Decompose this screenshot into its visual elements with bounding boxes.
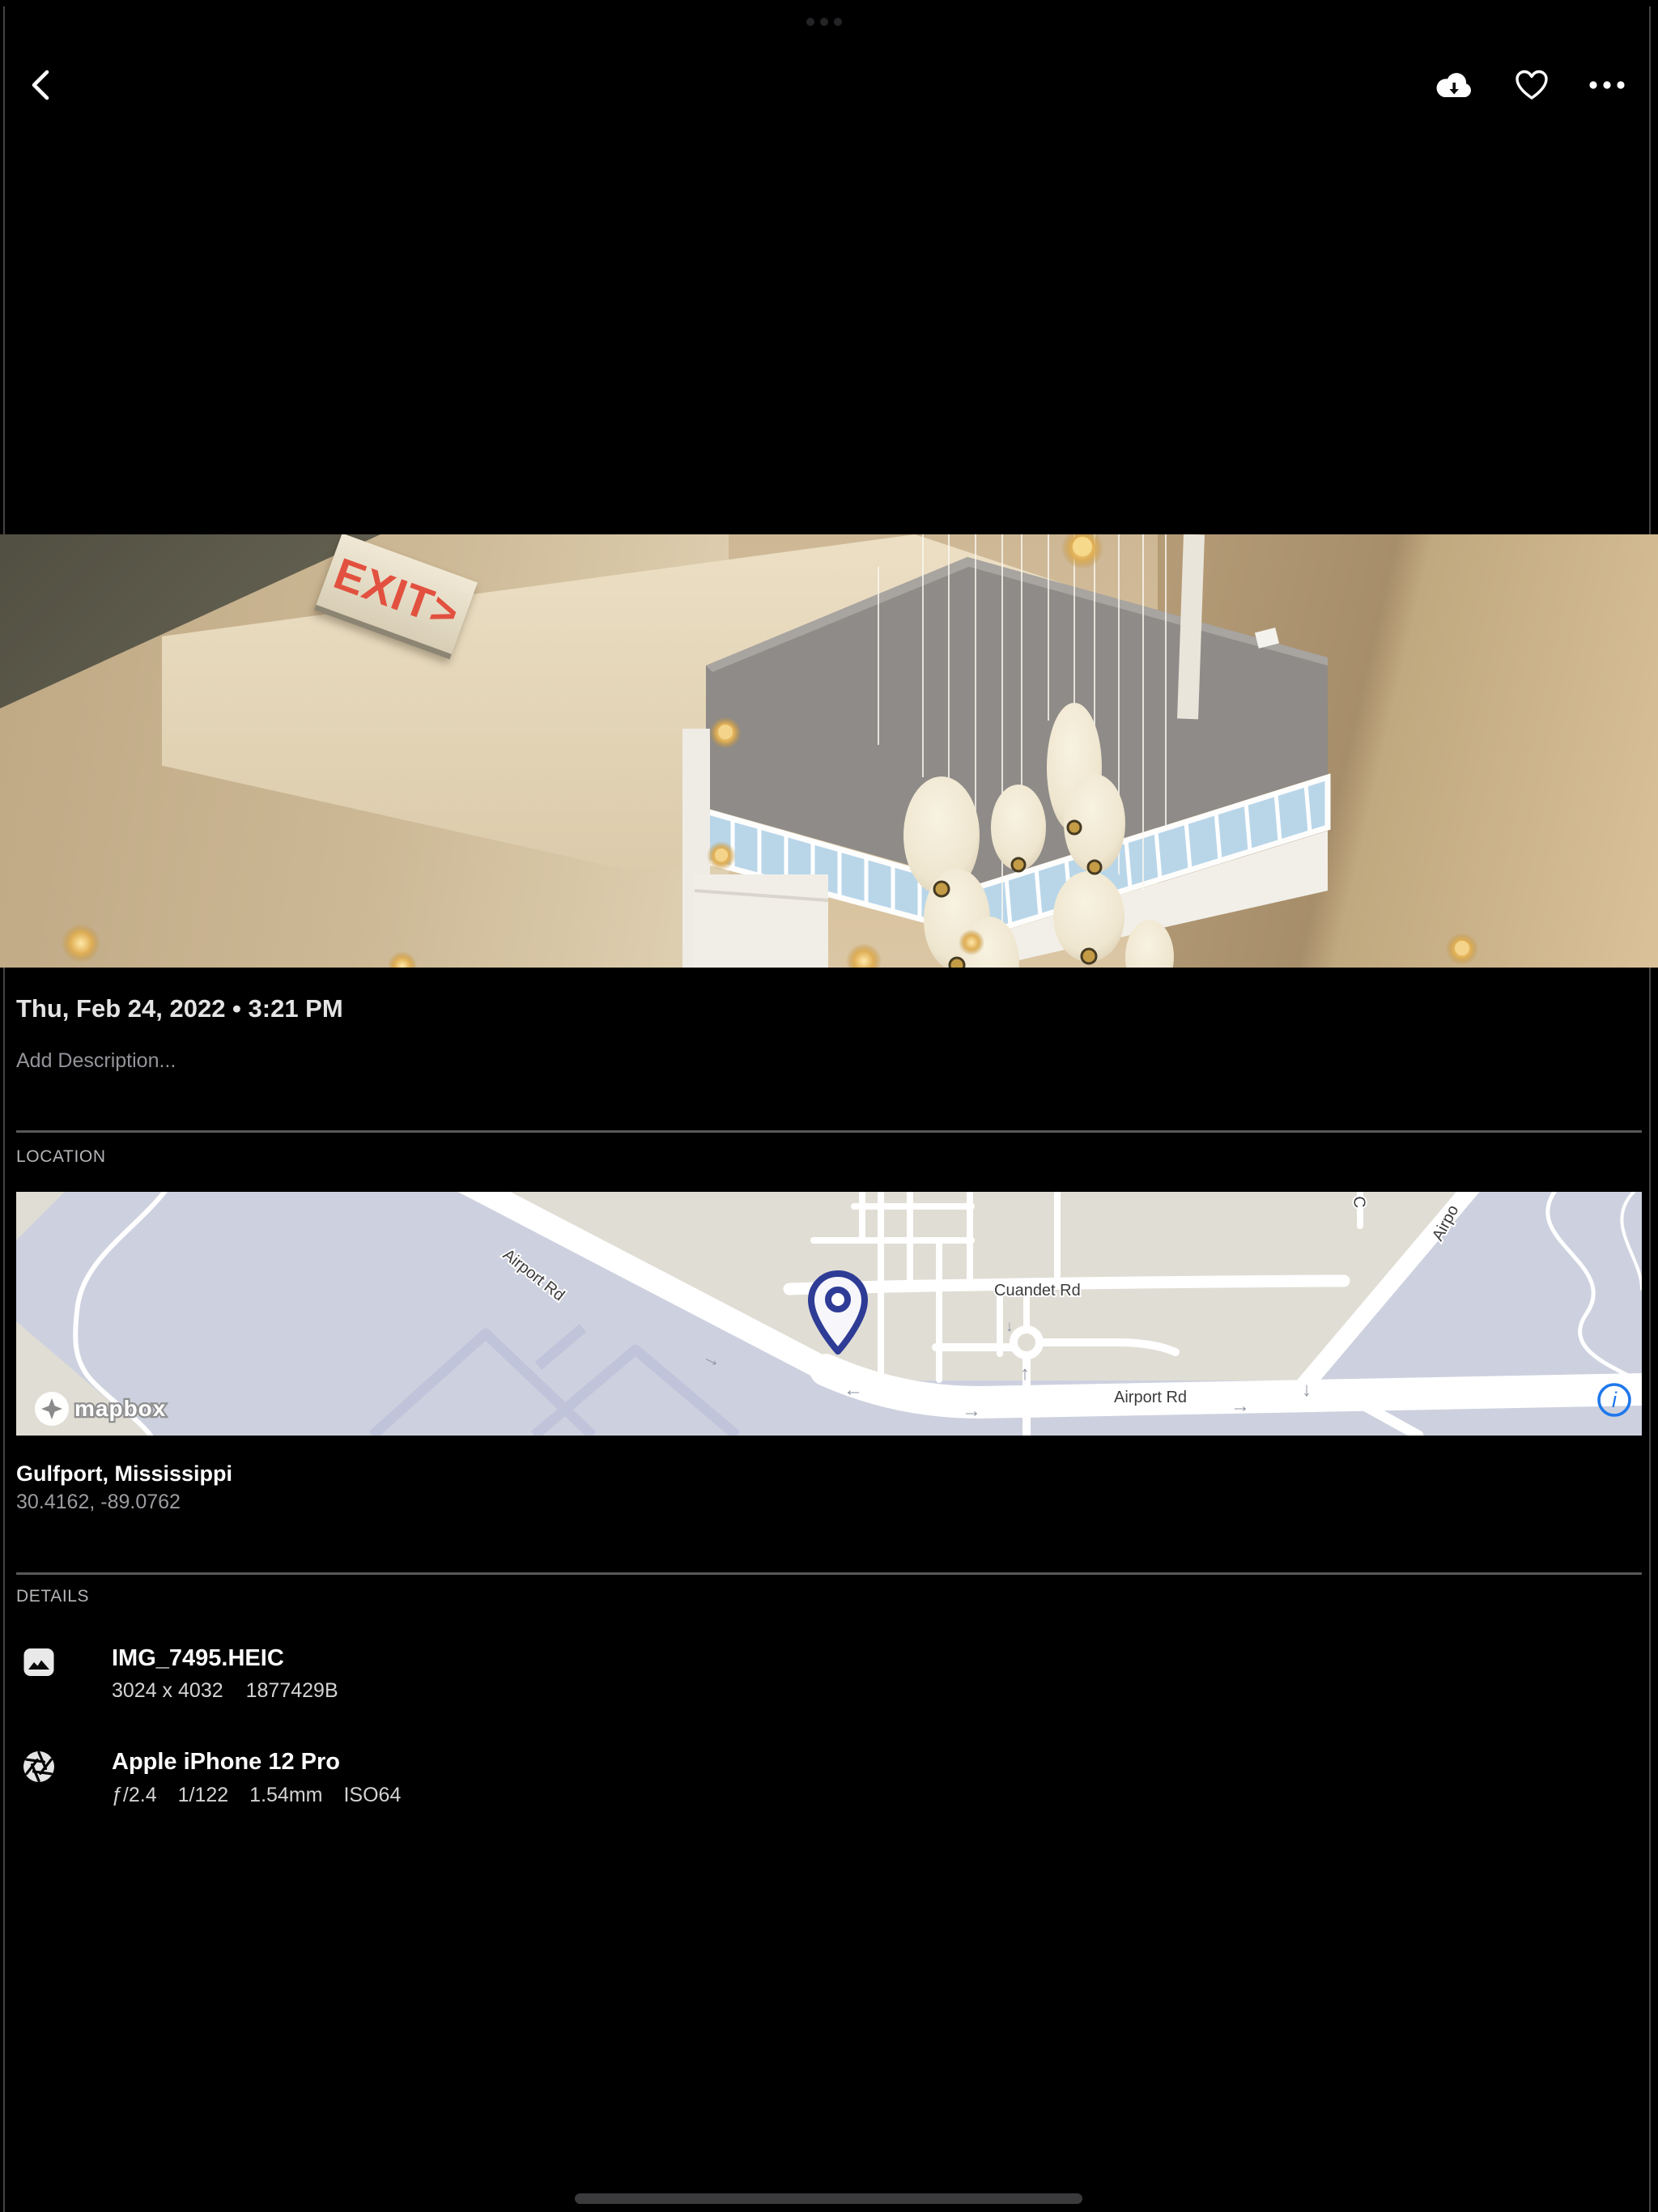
divider [16, 1130, 1642, 1133]
file-meta: 3024 x 4032 1877429B [112, 1679, 338, 1703]
photo-preview[interactable]: EXIT> [0, 534, 1658, 968]
map-canvas: → ← → → ↓ ↑ ↓ Airport Rd Cuandet Rd Airp… [16, 1192, 1642, 1436]
mapbox-logo: mapbox [35, 1392, 166, 1426]
camera-exif-row: ƒ/2.4 1/122 1.54mm ISO64 [112, 1784, 401, 1807]
more-options-button[interactable] [1588, 79, 1626, 94]
camera-aperture: ƒ/2.4 [112, 1784, 157, 1807]
download-button[interactable] [1433, 68, 1475, 108]
aperture-icon [23, 1750, 55, 1787]
road-arrow-icon: ↓ [1302, 1379, 1312, 1401]
home-indicator[interactable] [575, 2193, 1082, 2204]
location-coordinates: 30.4162, -89.0762 [16, 1491, 181, 1514]
map-label-partial-road: C [1350, 1196, 1368, 1209]
location-map[interactable]: → ← → → ↓ ↑ ↓ Airport Rd Cuandet Rd Airp… [16, 1192, 1642, 1436]
map-info-button[interactable]: i [1596, 1382, 1632, 1418]
location-heading: LOCATION [16, 1147, 106, 1167]
heart-icon [1515, 91, 1549, 104]
file-name: IMG_7495.HEIC [112, 1645, 284, 1672]
divider [16, 1572, 1642, 1575]
chevron-left-icon [24, 92, 60, 106]
camera-iso: ISO64 [343, 1784, 401, 1807]
cloud-download-icon [1433, 93, 1475, 107]
camera-focal-length: 1.54mm [249, 1784, 322, 1807]
map-label-airport-rd-horizontal: Airport Rd [1114, 1389, 1187, 1406]
photo-date: Thu, Feb 24, 2022 • 3:21 PM [16, 994, 343, 1023]
details-heading: DETAILS [16, 1587, 89, 1606]
photo-detail-screen: EXIT> Thu, Feb 24, 2022 • 3:21 PM Add De… [0, 0, 1658, 2212]
image-file-icon [23, 1648, 54, 1681]
description-input[interactable]: Add Description... [16, 1049, 176, 1073]
back-button[interactable] [24, 67, 60, 107]
road-arrow-icon: ← [844, 1379, 863, 1401]
road-arrow-icon: → [1231, 1395, 1250, 1417]
screen-right-border [1649, 6, 1651, 2212]
location-place: Gulfport, Mississippi [16, 1461, 232, 1487]
camera-shutter: 1/122 [178, 1784, 229, 1807]
camera-name: Apple iPhone 12 Pro [112, 1749, 340, 1776]
mapbox-wordmark: mapbox [74, 1396, 166, 1421]
photo-atrium-scene [0, 534, 1658, 968]
ellipsis-icon [1588, 79, 1626, 93]
info-icon-glyph: i [1612, 1388, 1618, 1412]
road-arrow-icon: → [962, 1400, 981, 1422]
road-arrow-icon: ↓ [1005, 1318, 1014, 1335]
map-label-cuandet-rd: Cuandet Rd [994, 1282, 1081, 1300]
screen-left-border [3, 6, 5, 2212]
favorite-button[interactable] [1515, 69, 1549, 105]
file-dimensions: 3024 x 4032 [112, 1679, 223, 1703]
road-arrow-icon: ↑ [1020, 1363, 1030, 1385]
file-size: 1877429B [246, 1679, 338, 1703]
system-window-dots-icon [806, 18, 842, 26]
